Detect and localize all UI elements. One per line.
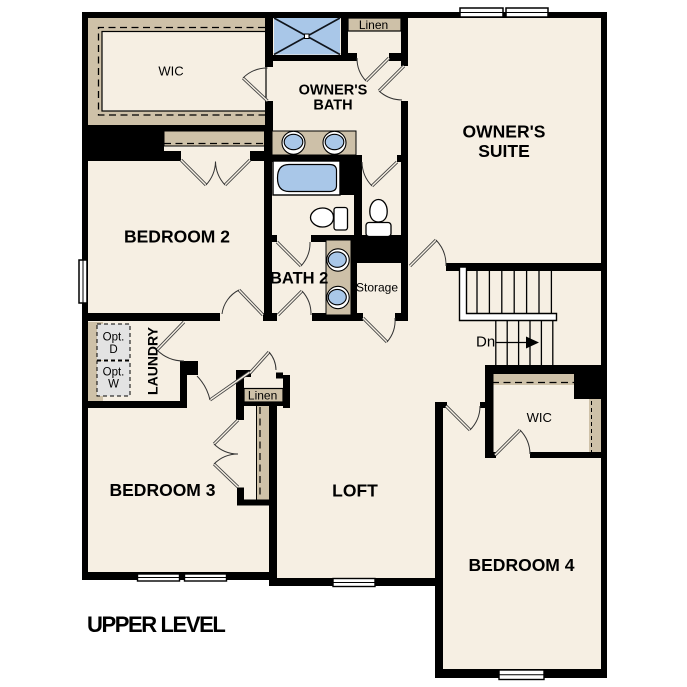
svg-text:Opt.: Opt. (103, 332, 125, 344)
svg-text:Storage: Storage (356, 281, 398, 295)
svg-text:Opt.: Opt. (103, 367, 125, 379)
svg-text:Linen: Linen (359, 18, 388, 32)
svg-text:BATH 2: BATH 2 (270, 270, 328, 288)
svg-text:LOFT: LOFT (332, 481, 378, 501)
svg-text:LAUNDRY: LAUNDRY (145, 326, 161, 395)
svg-text:BEDROOM 3: BEDROOM 3 (110, 480, 216, 500)
svg-text:WIC: WIC (158, 64, 183, 79)
svg-text:W: W (108, 379, 119, 391)
svg-text:Linen: Linen (248, 389, 277, 403)
svg-text:BEDROOM 2: BEDROOM 2 (124, 227, 230, 247)
svg-text:WIC: WIC (527, 410, 552, 425)
svg-text:Dn: Dn (476, 334, 495, 351)
svg-text:D: D (109, 344, 117, 356)
svg-text:OWNER'S: OWNER'S (299, 83, 368, 99)
svg-text:BEDROOM 4: BEDROOM 4 (469, 555, 575, 575)
svg-text:OWNER'S: OWNER'S (463, 122, 546, 142)
svg-text:UPPER LEVEL: UPPER LEVEL (87, 612, 225, 637)
svg-text:SUITE: SUITE (478, 141, 530, 161)
svg-text:BATH: BATH (313, 98, 352, 114)
